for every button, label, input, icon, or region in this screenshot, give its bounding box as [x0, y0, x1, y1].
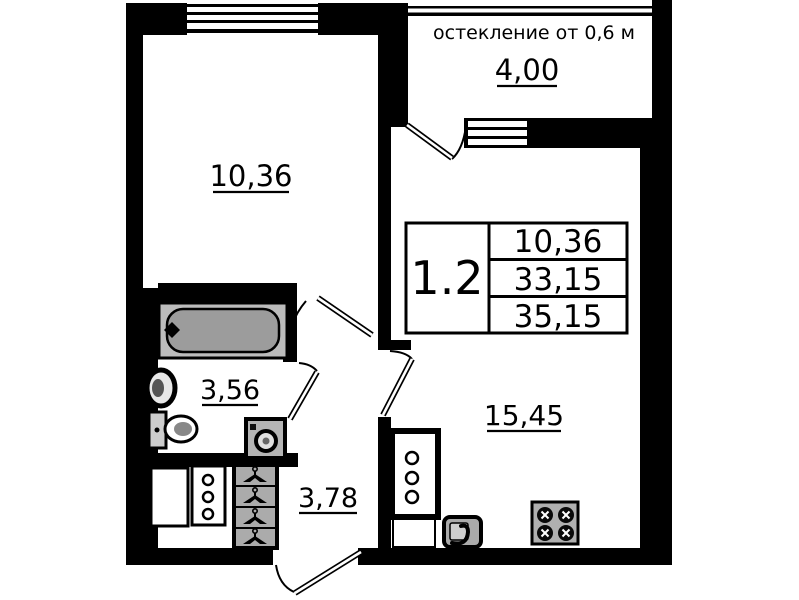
living-room-area-label: 10,36 [209, 159, 292, 193]
kitchen-shelf-icon [392, 431, 438, 517]
wall-balcony-bottom [527, 118, 652, 148]
door-kitchen [383, 351, 412, 415]
bathroom-area-label: 3,56 [200, 375, 260, 406]
hall-cabinet-icon [151, 468, 188, 526]
washbasin-icon [147, 370, 175, 406]
info-table: 1.2 10,36 33,15 35,15 [406, 223, 627, 335]
wall-top-left [126, 3, 187, 35]
hallway-area-label: 3,78 [298, 483, 358, 514]
wardrobe-hangers-icon [234, 465, 277, 548]
door-bathroom [290, 363, 317, 419]
wall-right-upper [652, 0, 672, 148]
wall-divider-upper [378, 3, 408, 127]
wall-right-lower [640, 148, 672, 565]
balcony-area-label: 4,00 [495, 53, 560, 87]
info-table-row-0: 10,36 [514, 224, 603, 260]
balcony-glazing-note: остекление от 0,6 м [433, 22, 635, 44]
kitchen-sink-icon [444, 517, 481, 547]
door-living-room [289, 298, 372, 352]
door-entrance [276, 552, 361, 593]
toilet-icon [149, 412, 197, 448]
stove-icon [532, 502, 578, 544]
washing-machine-icon [246, 419, 285, 458]
window-living-room [187, 4, 318, 33]
hall-shelf-icon [192, 466, 225, 525]
balcony-glazing-line [408, 6, 654, 16]
wall-bottom-right [358, 548, 672, 565]
kitchen-counter [393, 519, 435, 547]
door-jamb-kitchen [378, 340, 411, 350]
unit-number: 1.2 [410, 251, 483, 305]
floor-plan-canvas: 10,36 остекление от 0,6 м 4,00 3,56 3,78… [0, 0, 799, 600]
wall-divider-mid [378, 127, 391, 348]
info-table-row-2: 35,15 [514, 299, 603, 335]
window-balcony-kitchen [467, 118, 527, 148]
kitchen-area-label: 15,45 [484, 399, 564, 432]
wall-bottom-left [126, 548, 273, 565]
door-balcony [407, 125, 466, 159]
info-table-row-1: 33,15 [514, 262, 603, 298]
wall-left-upper [126, 3, 143, 288]
bathtub-icon [159, 303, 287, 358]
